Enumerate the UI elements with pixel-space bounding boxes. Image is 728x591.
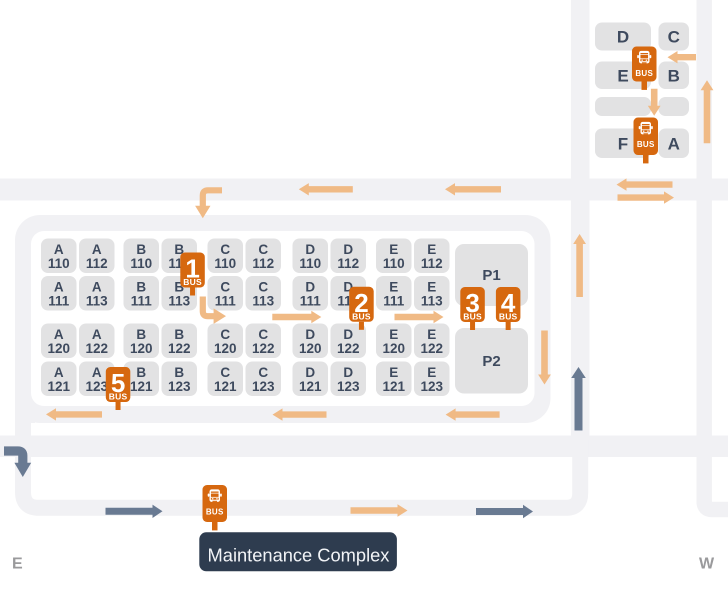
svg-text:P2: P2 [482, 353, 500, 370]
svg-text:123: 123 [337, 379, 360, 394]
svg-text:121: 121 [130, 379, 153, 394]
svg-text:C: C [668, 28, 680, 47]
svg-text:A: A [54, 327, 64, 342]
svg-text:A: A [54, 280, 64, 295]
svg-text:123: 123 [85, 379, 108, 394]
svg-text:D: D [617, 28, 629, 47]
svg-text:121: 121 [47, 379, 70, 394]
svg-text:E: E [427, 327, 436, 342]
svg-text:B: B [174, 365, 184, 380]
svg-text:B: B [136, 365, 146, 380]
svg-text:112: 112 [421, 256, 443, 271]
svg-text:C: C [220, 242, 230, 257]
svg-text:BUS: BUS [109, 392, 128, 402]
svg-text:112: 112 [86, 256, 108, 271]
svg-text:123: 123 [168, 379, 191, 394]
svg-text:E: E [389, 280, 398, 295]
svg-text:C: C [220, 365, 230, 380]
svg-text:A: A [92, 242, 102, 257]
svg-text:110: 110 [48, 256, 70, 271]
svg-text:P1: P1 [482, 267, 500, 284]
svg-text:B: B [174, 327, 184, 342]
svg-text:BUS: BUS [499, 312, 518, 322]
svg-text:BUS: BUS [352, 311, 371, 321]
svg-text:A: A [54, 242, 64, 257]
svg-text:122: 122 [85, 341, 108, 356]
svg-text:B: B [136, 280, 146, 295]
svg-text:C: C [258, 327, 268, 342]
svg-text:122: 122 [252, 341, 275, 356]
svg-text:Maintenance Complex: Maintenance Complex [208, 545, 390, 566]
svg-text:A: A [668, 134, 680, 153]
svg-text:120: 120 [130, 341, 153, 356]
svg-text:D: D [343, 365, 353, 380]
svg-text:123: 123 [252, 379, 275, 394]
svg-text:120: 120 [47, 341, 70, 356]
svg-text:111: 111 [131, 294, 153, 309]
svg-text:D: D [343, 327, 353, 342]
svg-text:120: 120 [214, 341, 237, 356]
svg-text:B: B [668, 66, 680, 85]
svg-text:113: 113 [86, 294, 108, 309]
svg-text:C: C [220, 327, 230, 342]
svg-text:C: C [258, 280, 268, 295]
svg-text:A: A [92, 327, 102, 342]
svg-text:D: D [305, 280, 315, 295]
svg-text:E: E [389, 242, 398, 257]
svg-text:123: 123 [420, 379, 443, 394]
svg-text:D: D [305, 242, 315, 257]
svg-text:122: 122 [168, 341, 191, 356]
svg-text:111: 111 [383, 294, 405, 309]
svg-text:111: 111 [300, 294, 322, 309]
svg-text:113: 113 [168, 294, 190, 309]
svg-text:C: C [258, 242, 268, 257]
svg-text:BUS: BUS [635, 69, 653, 78]
svg-text:112: 112 [337, 256, 359, 271]
svg-text:111: 111 [215, 294, 237, 309]
svg-text:112: 112 [252, 256, 274, 271]
svg-text:E: E [427, 242, 436, 257]
svg-text:D: D [343, 242, 353, 257]
svg-text:120: 120 [299, 341, 322, 356]
svg-text:D: D [305, 365, 315, 380]
svg-text:121: 121 [299, 379, 322, 394]
svg-text:A: A [92, 365, 102, 380]
svg-text:E: E [427, 365, 436, 380]
svg-text:113: 113 [252, 294, 274, 309]
svg-text:W: W [699, 556, 715, 573]
svg-text:110: 110 [299, 256, 321, 271]
svg-text:122: 122 [420, 341, 443, 356]
svg-text:113: 113 [421, 294, 443, 309]
svg-text:C: C [220, 280, 230, 295]
svg-text:110: 110 [130, 256, 152, 271]
svg-text:F: F [618, 134, 628, 153]
svg-text:122: 122 [337, 341, 360, 356]
svg-text:121: 121 [382, 379, 405, 394]
svg-text:E: E [389, 365, 398, 380]
svg-text:D: D [305, 327, 315, 342]
svg-text:B: B [136, 327, 146, 342]
svg-text:BUS: BUS [637, 140, 655, 149]
svg-text:121: 121 [214, 379, 237, 394]
svg-text:C: C [258, 365, 268, 380]
svg-text:120: 120 [382, 341, 405, 356]
svg-text:BUS: BUS [183, 277, 202, 287]
svg-text:E: E [12, 556, 23, 573]
svg-text:110: 110 [383, 256, 405, 271]
svg-text:E: E [427, 280, 436, 295]
svg-text:110: 110 [214, 256, 236, 271]
svg-text:A: A [92, 280, 102, 295]
svg-text:111: 111 [48, 294, 70, 309]
svg-text:BUS: BUS [463, 312, 482, 322]
svg-text:BUS: BUS [206, 508, 224, 517]
svg-text:B: B [136, 242, 146, 257]
svg-text:E: E [389, 327, 398, 342]
svg-text:E: E [617, 66, 628, 85]
svg-text:A: A [54, 365, 64, 380]
